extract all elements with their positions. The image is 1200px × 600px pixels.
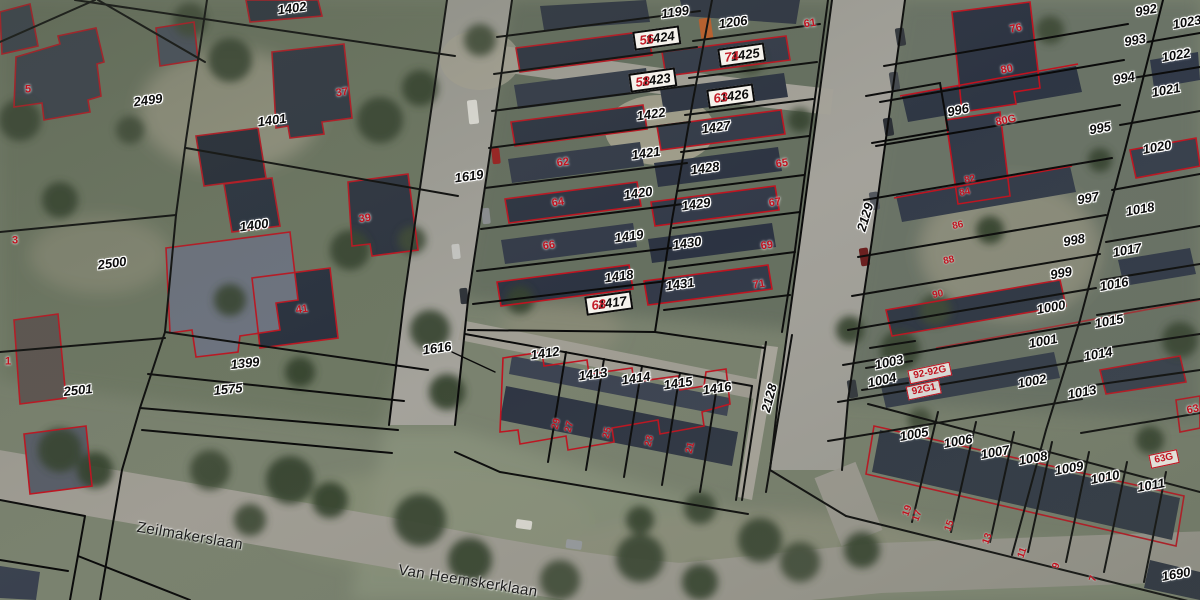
map-canvas[interactable]: 1402249914011619140025001399250115751616… [0, 0, 1200, 600]
aerial-imagery-layer [0, 0, 1200, 600]
lighting-overlay [0, 0, 1200, 600]
